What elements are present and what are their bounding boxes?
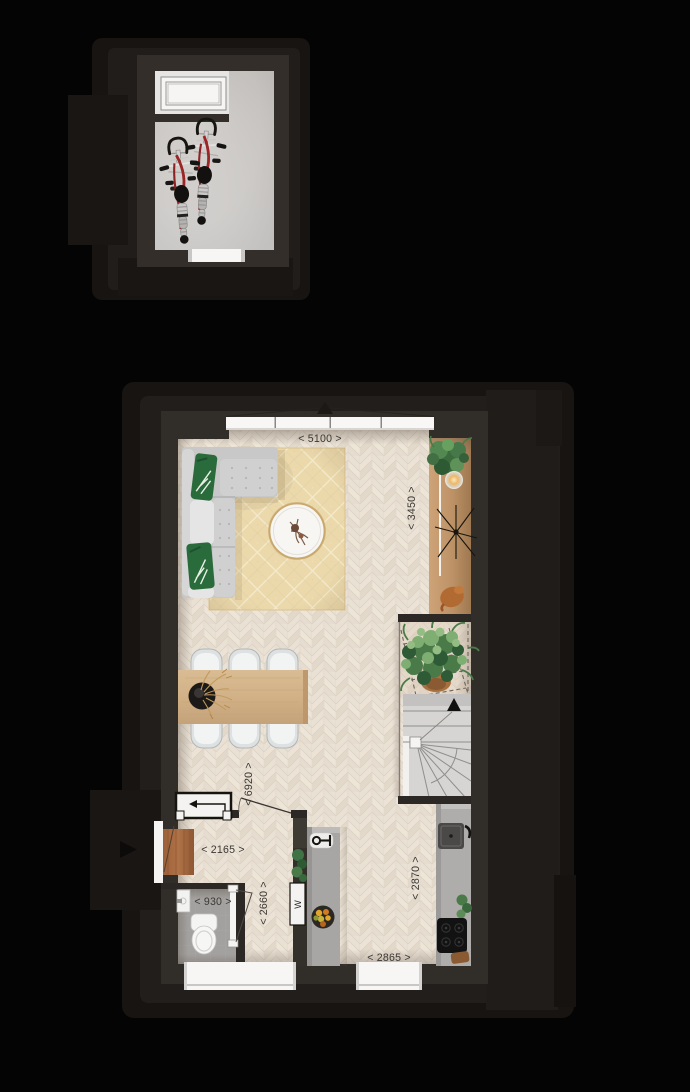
svg-text:< 6920 >: < 6920 > bbox=[243, 762, 255, 805]
svg-text:< 5100 >: < 5100 > bbox=[298, 433, 341, 445]
svg-text:< 2870 >: < 2870 > bbox=[410, 856, 422, 899]
svg-text:< 3450 >: < 3450 > bbox=[406, 486, 418, 529]
svg-text:< 930 >: < 930 > bbox=[194, 896, 231, 908]
svg-text:< 2865 >: < 2865 > bbox=[367, 952, 410, 964]
svg-text:< 2165 >: < 2165 > bbox=[201, 844, 244, 856]
svg-text:< 2660 >: < 2660 > bbox=[258, 881, 270, 924]
svg-text:W: W bbox=[293, 900, 303, 909]
